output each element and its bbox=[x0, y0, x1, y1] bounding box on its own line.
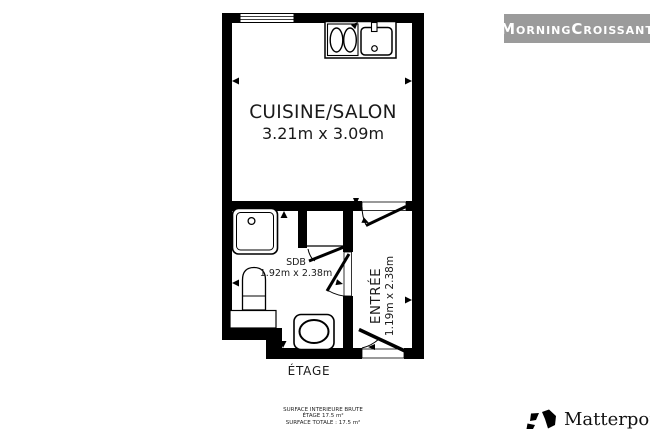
matterport-label: Matterport® bbox=[564, 409, 650, 429]
room-name: CUISINE/SALON bbox=[222, 101, 424, 124]
wall-left bbox=[222, 13, 232, 340]
floor-label: ÉTAGE bbox=[209, 364, 409, 378]
shower-icon bbox=[233, 209, 278, 255]
dimension-arrow-icon bbox=[232, 78, 239, 85]
room-label-entree: ENTRÉE 1.19m x 2.38m bbox=[368, 237, 412, 355]
room-name: ENTRÉE bbox=[368, 237, 384, 355]
wall-right bbox=[412, 13, 424, 359]
wall-entree-lower bbox=[343, 296, 353, 348]
room-dimensions: 1.19m x 2.38m bbox=[384, 237, 397, 355]
wall-closet-left bbox=[298, 203, 307, 248]
room-dimensions: 1.92m x 2.38m bbox=[237, 269, 355, 280]
wall-step-vertical bbox=[266, 340, 282, 349]
stove-icon bbox=[328, 24, 359, 56]
wall-divider-right bbox=[406, 201, 424, 211]
morningcroissant-badge: MorningCroissant bbox=[504, 14, 650, 43]
wall-entree-upper bbox=[343, 203, 353, 252]
room-label-sdb: SDB 1.92m x 2.38m bbox=[237, 258, 355, 280]
sink-icon bbox=[361, 23, 392, 56]
matterport-logo: Matterport® bbox=[524, 402, 650, 429]
dimension-arrow-icon bbox=[335, 279, 343, 287]
kitchen-counter-icon bbox=[325, 20, 396, 58]
room-label-cuisine-salon: CUISINE/SALON 3.21m x 3.09m bbox=[222, 101, 424, 144]
toilet-icon bbox=[294, 315, 334, 350]
matterport-wordmark: Matterport bbox=[564, 409, 650, 429]
dimension-arrow-icon bbox=[281, 211, 288, 218]
matterport-icon bbox=[524, 402, 560, 429]
floorplan-canvas: CUISINE/SALON 3.21m x 3.09m SDB 1.92m x … bbox=[0, 0, 650, 429]
surface-summary: SURFACE INTERIEURE BRUTE ÉTAGE 17.5 m² S… bbox=[223, 407, 423, 426]
dimension-arrow-icon bbox=[232, 280, 239, 287]
surface-line-3: SURFACE TOTALE : 17.5 m² bbox=[223, 420, 423, 426]
window-icon bbox=[240, 14, 294, 23]
wall-step-horizontal bbox=[222, 328, 282, 340]
dimension-arrow-icon bbox=[405, 78, 412, 85]
morningcroissant-label: MorningCroissant bbox=[500, 20, 650, 38]
room-dimensions: 3.21m x 3.09m bbox=[222, 124, 424, 144]
